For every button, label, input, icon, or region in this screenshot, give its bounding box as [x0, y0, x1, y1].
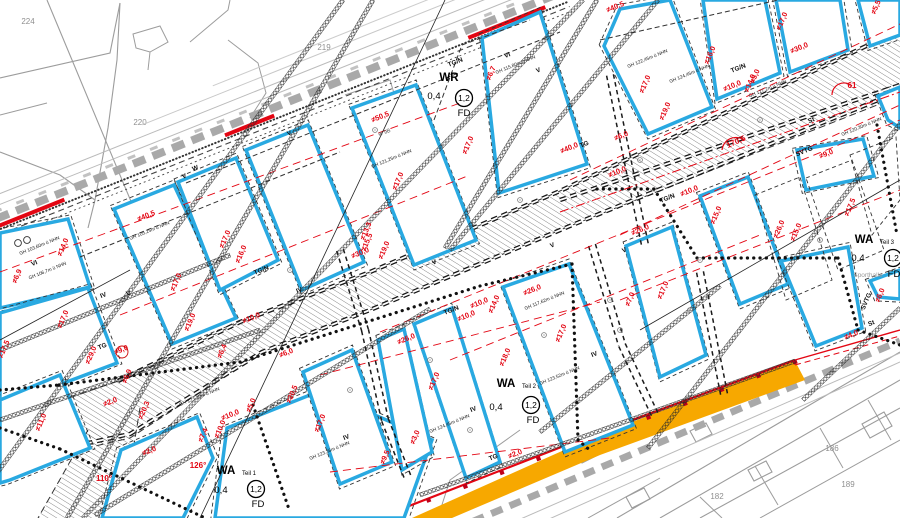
- svg-text:WA: WA: [217, 465, 236, 477]
- svg-text:1,2: 1,2: [458, 93, 470, 103]
- svg-text:FD: FD: [458, 108, 471, 119]
- svg-text:FD: FD: [888, 269, 900, 280]
- svg-text:Teil 2: Teil 2: [522, 384, 537, 390]
- svg-text:0,4: 0,4: [489, 402, 502, 413]
- svg-text:1,2: 1,2: [525, 400, 537, 410]
- svg-text:186: 186: [825, 444, 839, 453]
- svg-text:Teil 1: Teil 1: [242, 471, 257, 477]
- svg-text:0,4: 0,4: [427, 91, 440, 102]
- svg-text:126°: 126°: [190, 461, 207, 470]
- svg-text:220: 220: [133, 118, 147, 127]
- svg-text:110°: 110°: [96, 474, 112, 483]
- svg-text:224: 224: [21, 17, 35, 26]
- svg-text:Sporthalle: Sporthalle: [853, 272, 883, 279]
- svg-text:WA: WA: [497, 378, 516, 390]
- svg-text:0,4: 0,4: [851, 253, 864, 264]
- svg-text:189: 189: [841, 480, 855, 489]
- svg-text:FD: FD: [252, 499, 265, 510]
- svg-text:182: 182: [710, 492, 724, 501]
- svg-text:Teil 3: Teil 3: [880, 240, 895, 246]
- svg-text:0,4: 0,4: [214, 485, 227, 496]
- svg-text:FD: FD: [527, 415, 540, 426]
- svg-text:1,2: 1,2: [250, 484, 262, 494]
- svg-text:1,2: 1,2: [887, 253, 899, 263]
- svg-text:WA: WA: [855, 234, 874, 246]
- svg-text:WR: WR: [439, 72, 459, 84]
- svg-text:219: 219: [317, 43, 331, 52]
